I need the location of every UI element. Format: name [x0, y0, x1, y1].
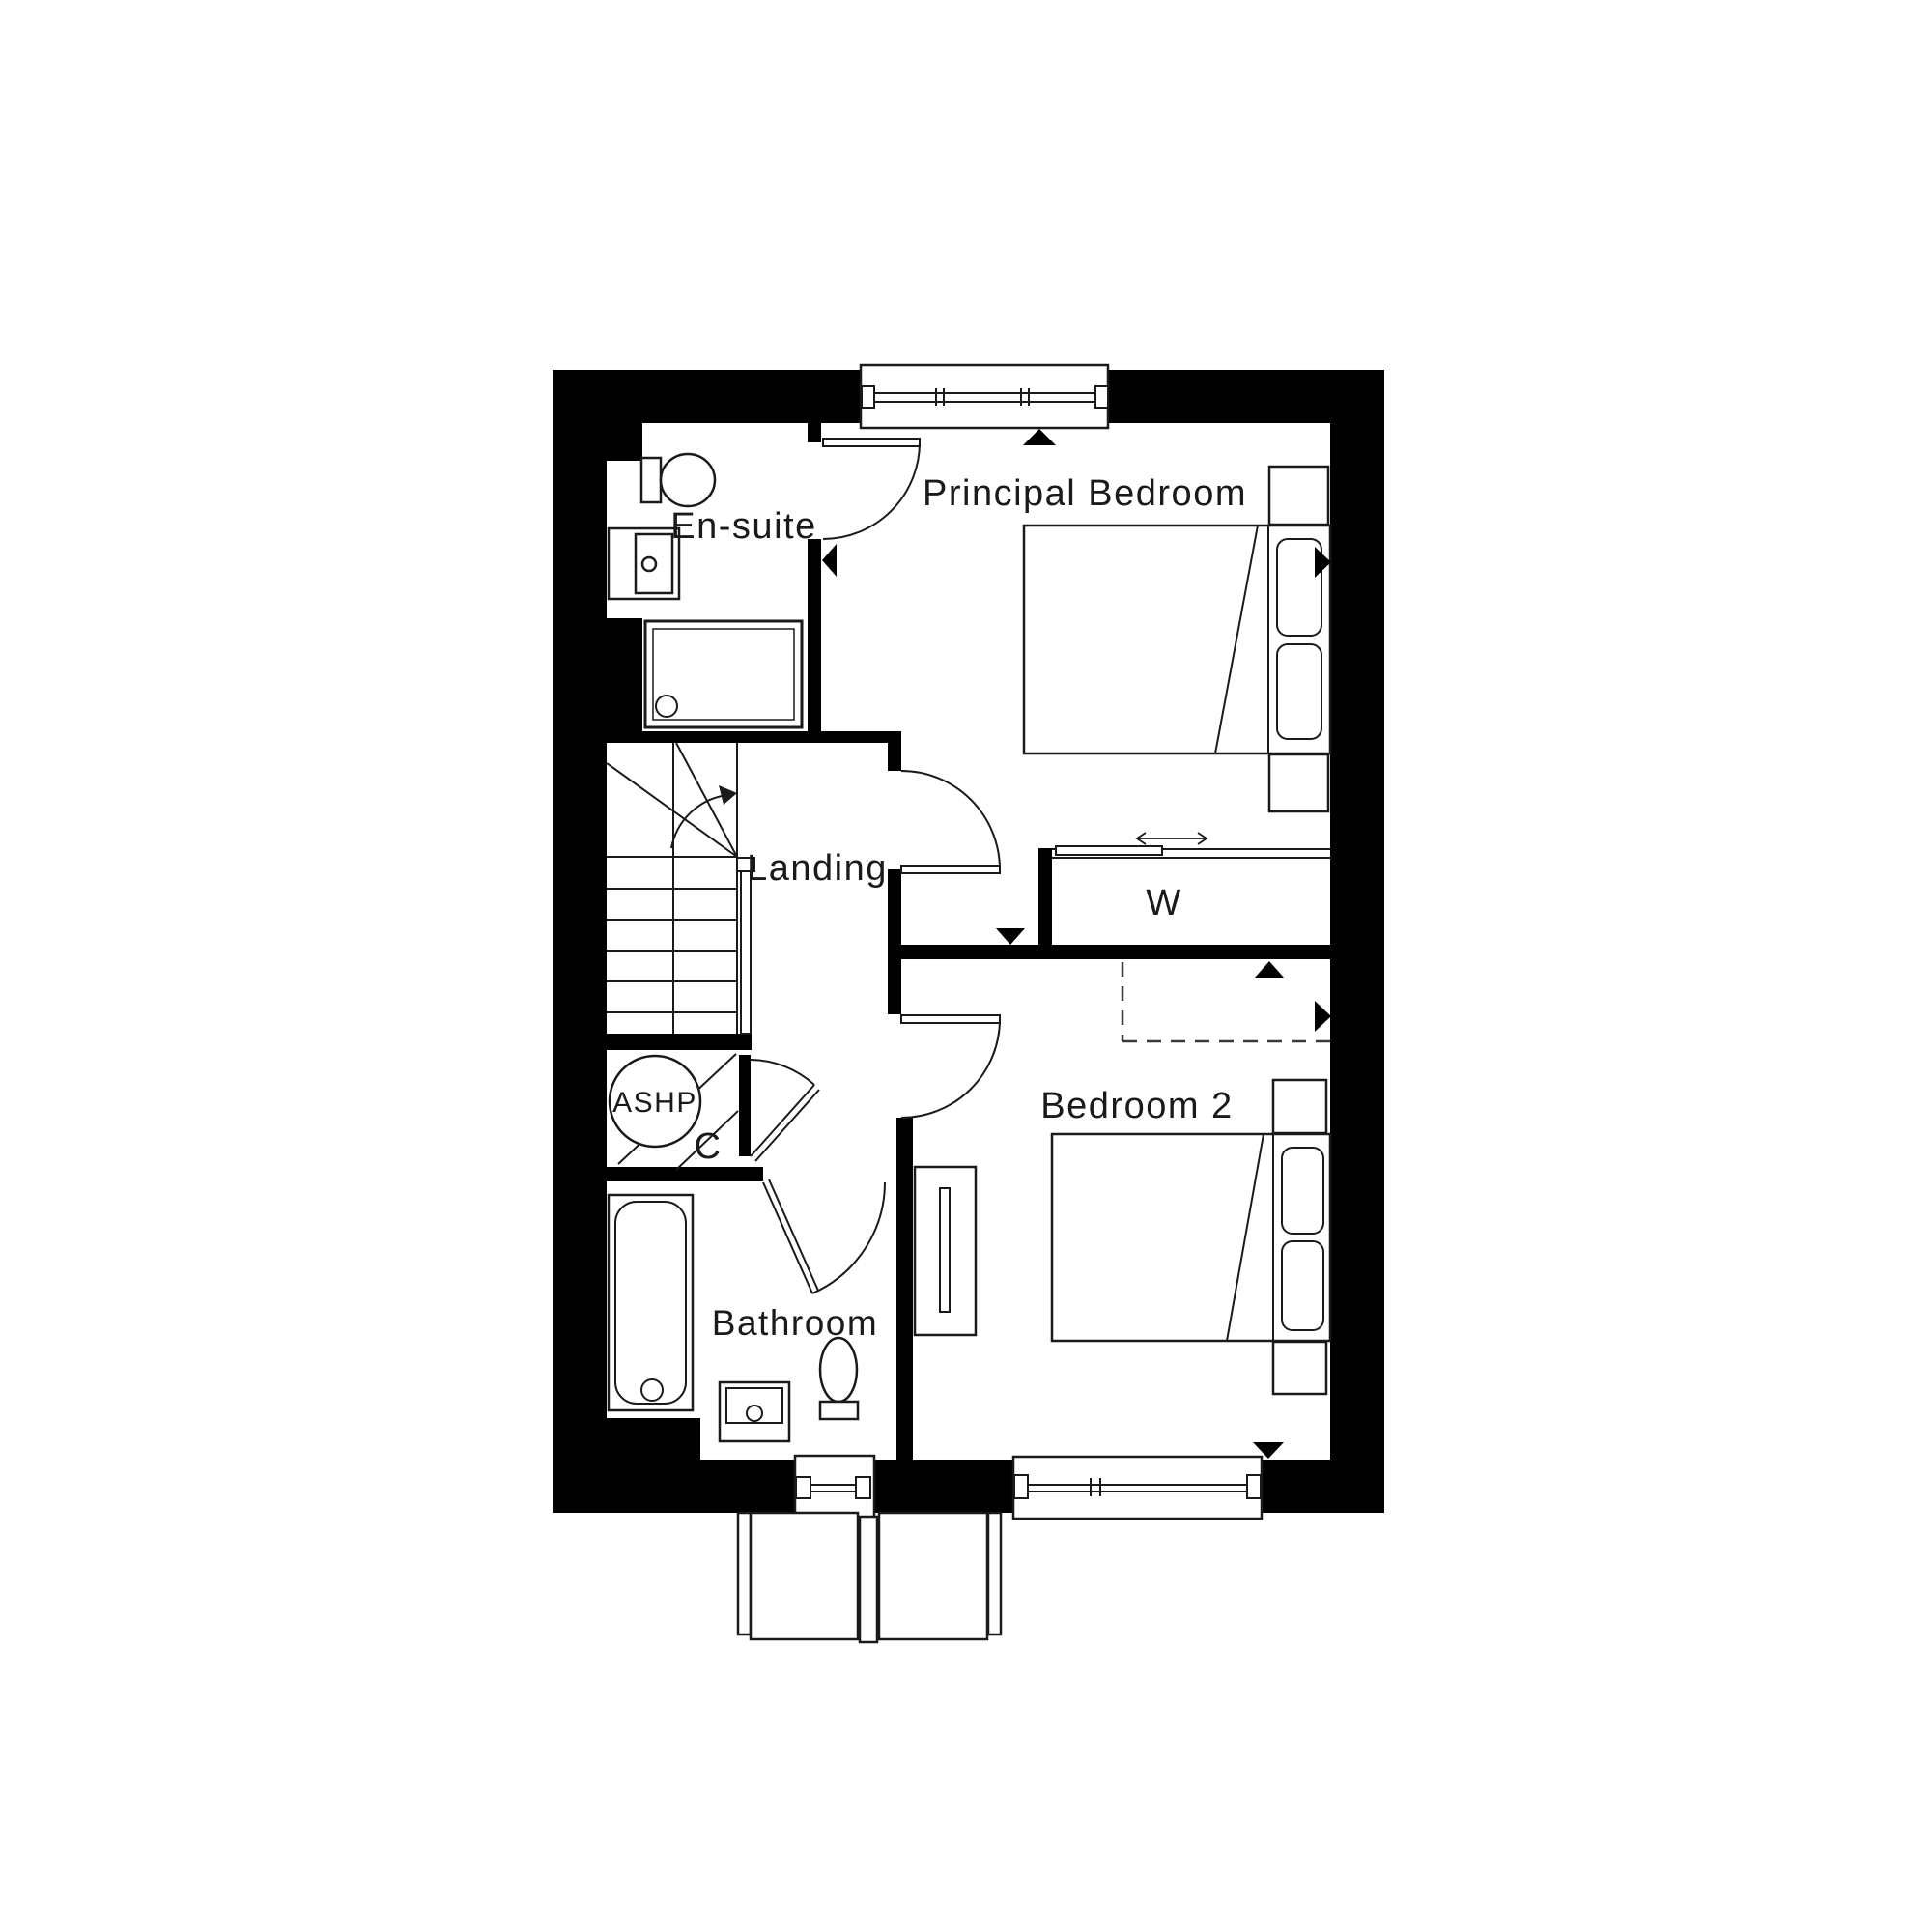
room-label-principal-bedroom: Principal Bedroom: [923, 473, 1247, 514]
shower-drain-icon: [656, 696, 677, 717]
radiator-slot: [940, 1188, 950, 1312]
room-label-bedroom-2: Bedroom 2: [1040, 1086, 1233, 1126]
principal-door-leaf: [901, 866, 1000, 873]
window-cap: [1095, 386, 1108, 408]
porch-structure: [738, 1513, 1001, 1642]
wall-ensuite-east: [808, 539, 821, 743]
wall-bathroom-north: [553, 1167, 763, 1181]
floorplan-drawing: Principal Bedroom En-suite Landing W ASH…: [0, 0, 1932, 1932]
window-cap: [1247, 1475, 1261, 1498]
wall-principal-door-stub: [888, 743, 901, 771]
nightstand: [1269, 754, 1328, 811]
bath-inner: [615, 1202, 686, 1404]
window-bedroom2: [1013, 1457, 1262, 1519]
wall-south-bathroom-thick: [553, 1418, 700, 1513]
toilet-cistern: [641, 458, 661, 502]
window-frame: [861, 365, 1108, 428]
floorplan-page: Principal Bedroom En-suite Landing W ASH…: [0, 0, 1932, 1932]
wall-landing-east: [888, 869, 901, 1014]
window-frame: [1013, 1457, 1262, 1519]
ensuite-door-leaf: [823, 439, 920, 446]
wall-wardrobe-west: [1038, 848, 1052, 945]
wall-bedroom2-door-stub: [896, 1118, 913, 1167]
banister: [741, 871, 751, 1034]
porch-post: [738, 1513, 751, 1634]
slide-panel: [1056, 846, 1162, 855]
nightstand: [1273, 1080, 1326, 1133]
toilet-bowl: [661, 454, 715, 506]
wall-west: [553, 370, 607, 1513]
porch-post: [860, 1517, 877, 1642]
room-label-en-suite: En-suite: [670, 506, 816, 547]
nightstand: [1269, 467, 1328, 525]
window-bathroom: [795, 1456, 874, 1519]
wall-under-stairs: [553, 1034, 752, 1050]
porch-panel: [879, 1513, 987, 1639]
basin-tap-icon: [642, 557, 656, 571]
window-cap: [796, 1477, 810, 1498]
wall-main-horizontal: [888, 945, 1330, 959]
wall-bathroom-east: [896, 1167, 913, 1460]
bedroom2-door-leaf: [901, 1015, 1000, 1023]
toilet-base: [820, 1402, 858, 1419]
wall-east: [1330, 370, 1384, 1513]
porch-panel: [751, 1513, 858, 1639]
room-label-cupboard: C: [695, 1126, 723, 1167]
window-cap: [856, 1477, 870, 1498]
pillow: [1282, 1241, 1323, 1330]
window-cap: [862, 386, 874, 408]
room-label-ashp: ASHP: [612, 1087, 697, 1119]
room-label-bathroom: Bathroom: [712, 1303, 878, 1343]
bath-drain-icon: [641, 1379, 663, 1401]
wall-ensuite-pier-top: [607, 423, 642, 461]
wall-ensuite-south: [553, 731, 901, 743]
pillow: [1282, 1148, 1323, 1234]
wall-ensuite-east-stub: [808, 423, 821, 442]
wall-cupboard-east: [739, 1055, 751, 1156]
window-cap: [1014, 1475, 1028, 1498]
toilet-bowl: [820, 1338, 857, 1402]
porch-post: [988, 1513, 1001, 1634]
pillow: [1277, 644, 1321, 739]
wall-ensuite-pier-bottom: [607, 618, 642, 731]
room-label-landing: Landing: [747, 848, 888, 889]
nightstand: [1273, 1342, 1326, 1394]
room-label-wardrobe: W: [1146, 883, 1181, 923]
window-principal: [861, 365, 1108, 428]
sink-tap-icon: [747, 1406, 762, 1421]
